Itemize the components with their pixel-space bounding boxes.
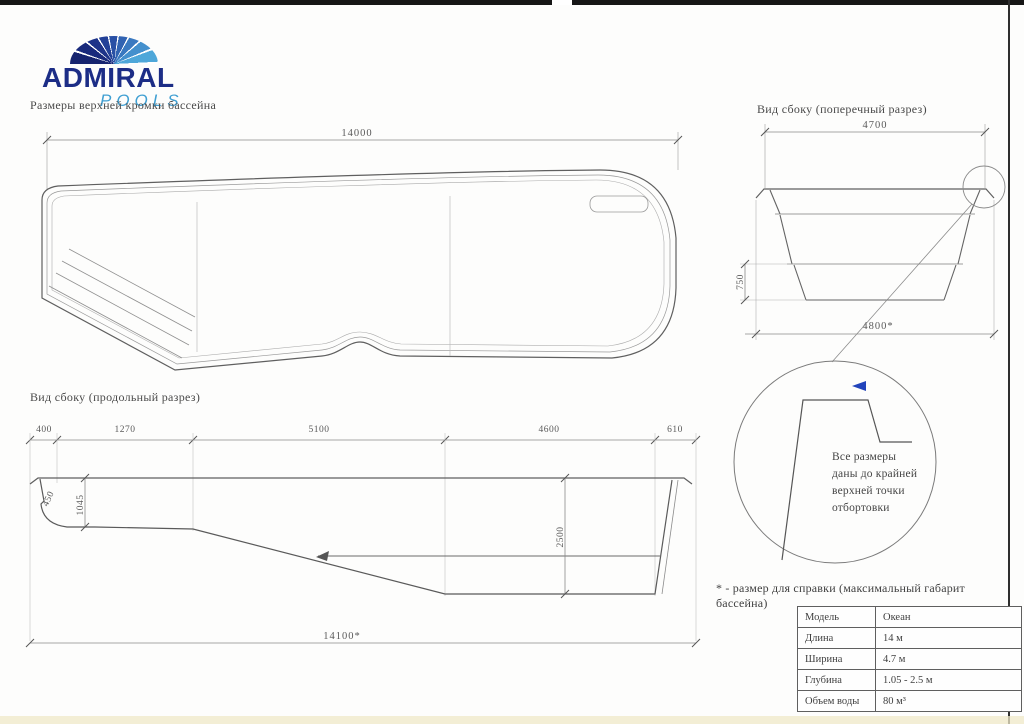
pool-drawing-page: { "colors":{"brand_navy":"#1c2d86","bran… xyxy=(0,0,1024,724)
plan-length-dim-label: 14000 xyxy=(341,128,372,139)
ls-shallow-depth-label: 1045 xyxy=(76,495,86,516)
scan-top-border-gap xyxy=(552,0,572,5)
spec-value: 4.7 м xyxy=(876,649,1022,670)
ls-dim-1270: 1270 xyxy=(115,425,136,435)
ls-mid-line-arrow-icon xyxy=(316,551,329,561)
spec-label: Объем воды xyxy=(798,691,876,712)
spec-label: Глубина xyxy=(798,670,876,691)
table-row: Глубина 1.05 - 2.5 м xyxy=(798,670,1022,691)
spec-value: Океан xyxy=(876,607,1022,628)
cs-step-dim-label: 750 xyxy=(736,274,746,290)
detail-note-line: даны до крайней xyxy=(832,468,917,480)
detail-note-line: Все размеры xyxy=(832,451,896,463)
ls-step-dim-label: 450 xyxy=(41,490,57,509)
long-section-drawing: 400 1270 5100 4600 610 450 1045 2500 141… xyxy=(12,413,712,663)
table-row: Объем воды 80 м³ xyxy=(798,691,1022,712)
spec-value: 80 м³ xyxy=(876,691,1022,712)
spec-label: Длина xyxy=(798,628,876,649)
pool-plan-outline-inner2 xyxy=(52,180,664,358)
table-row: Модель Океан xyxy=(798,607,1022,628)
detail-leader-line xyxy=(832,204,972,362)
table-row: Ширина 4.7 м xyxy=(798,649,1022,670)
ls-dim-400: 400 xyxy=(36,425,52,435)
table-row: Длина 14 м xyxy=(798,628,1022,649)
cs-step-lines xyxy=(775,214,975,264)
cross-section-drawing: 4700 750 4800* Все размеры даны до крайн… xyxy=(720,110,1020,575)
scan-top-border xyxy=(0,0,1024,5)
plan-view-drawing: 14000 xyxy=(12,118,712,390)
detail-callout-circle-small xyxy=(963,166,1005,208)
long-section-title: Вид сбоку (продольный разрез) xyxy=(30,390,200,405)
plan-view-title: Размеры верхней кромки бассейна xyxy=(30,98,216,113)
cs-top-edge xyxy=(756,189,994,198)
logo-brand-text: ADMIRAL xyxy=(42,64,262,92)
skimmer-recess xyxy=(590,196,648,212)
ls-extension-lines xyxy=(30,433,696,641)
scan-bottom-tint xyxy=(0,716,1024,724)
cs-walls xyxy=(770,190,980,300)
logo-umbrella-icon xyxy=(70,36,158,64)
ls-dim-5100: 5100 xyxy=(309,425,330,435)
cs-top-dim-label: 4700 xyxy=(863,120,888,131)
spec-value: 14 м xyxy=(876,628,1022,649)
spec-table: Модель Океан Длина 14 м Ширина 4.7 м Глу… xyxy=(797,606,1022,712)
pool-plan-outline-outer xyxy=(42,170,676,370)
spec-label: Модель xyxy=(798,607,876,628)
detail-note-line: верхней точки xyxy=(832,485,905,497)
ls-top-dim-labels: 400 1270 5100 4600 610 xyxy=(36,425,683,435)
spec-value: 1.05 - 2.5 м xyxy=(876,670,1022,691)
ls-bottom-dim-label: 14100* xyxy=(323,631,361,642)
ls-top-edge xyxy=(30,478,692,484)
ls-dim-610: 610 xyxy=(667,425,683,435)
ls-deep-depth-label: 2500 xyxy=(556,527,566,548)
flange-profile-detail xyxy=(782,400,912,560)
detail-note-text: Все размеры даны до крайней верхней точк… xyxy=(832,451,917,514)
ls-pool-profile xyxy=(40,479,672,594)
ls-dim-4600: 4600 xyxy=(539,425,560,435)
spec-label: Ширина xyxy=(798,649,876,670)
detail-note-line: отбортовки xyxy=(832,502,890,514)
flange-point-arrow-icon xyxy=(852,381,866,391)
